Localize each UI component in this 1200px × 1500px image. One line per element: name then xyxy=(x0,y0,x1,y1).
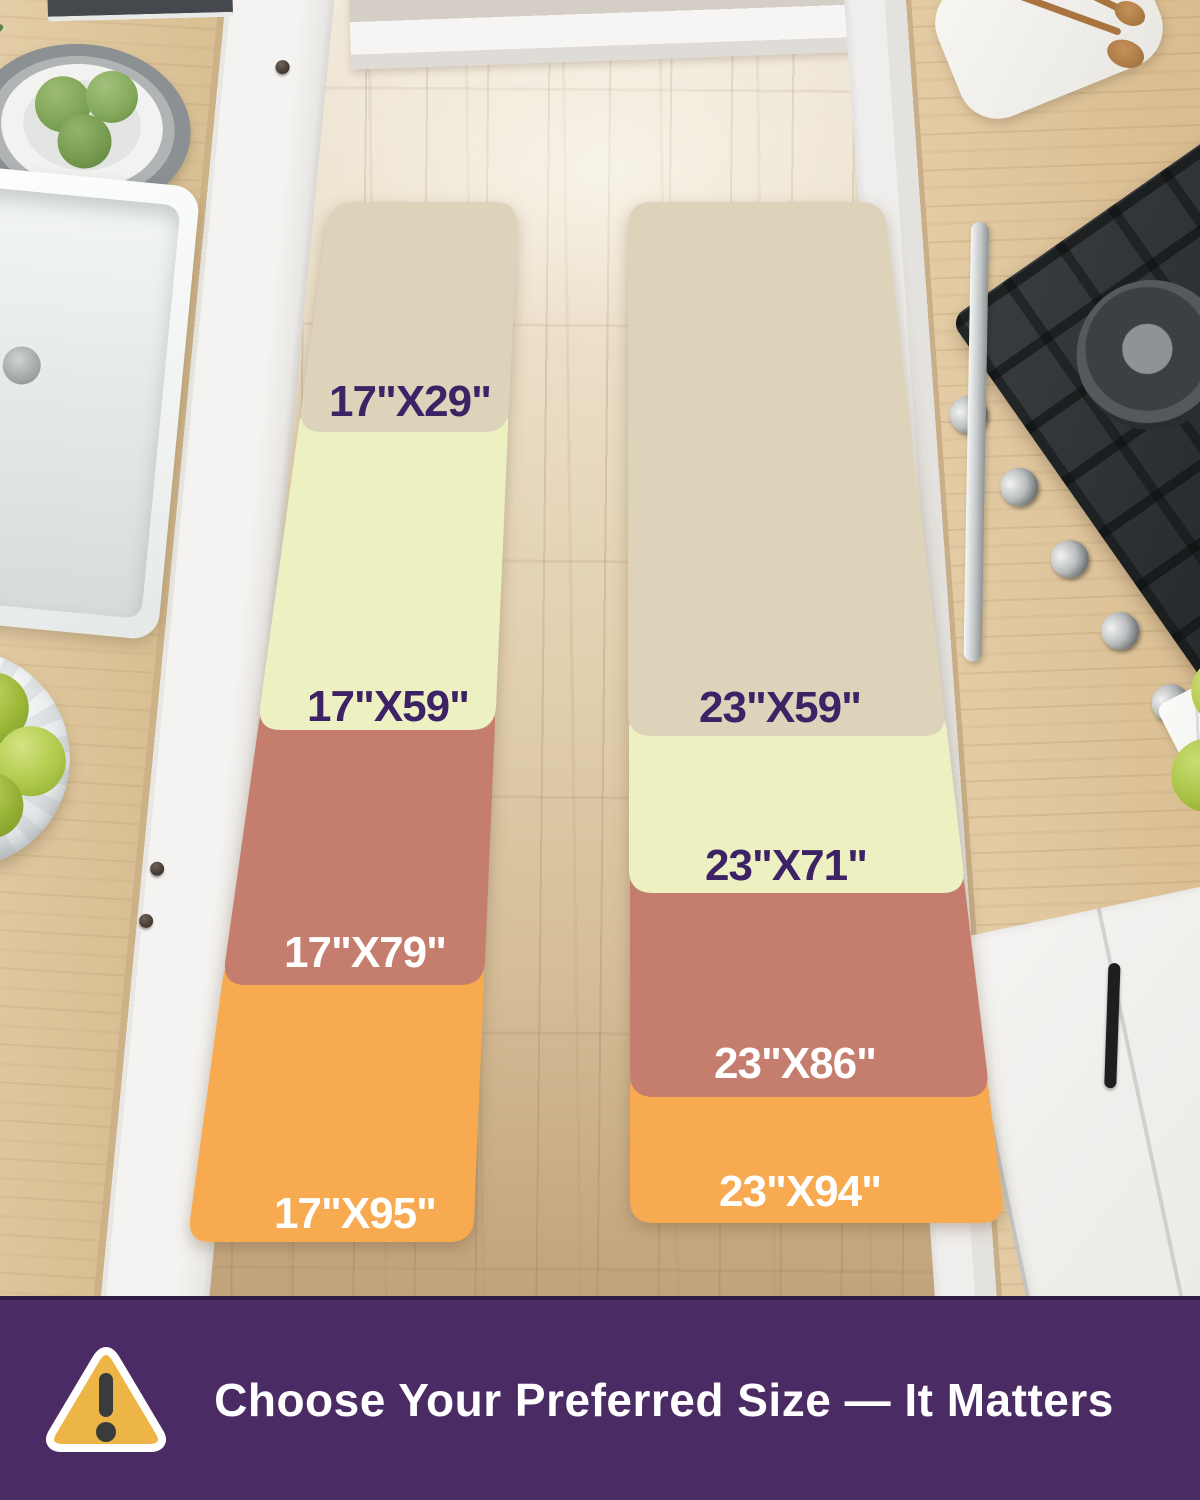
right-mat-label-23x71: 23"X71" xyxy=(705,841,867,890)
left-mat-17x59 xyxy=(260,402,508,730)
product-size-guide-image: 17"X29" 17"X59" 17"X79" 17"X95" 23"X59" … xyxy=(0,0,1200,1500)
banner-caption: Choose Your Preferred Size — It Matters xyxy=(172,1373,1156,1427)
left-runner: 17"X29" 17"X59" 17"X79" 17"X95" xyxy=(190,202,517,1242)
right-mat-label-23x86: 23"X86" xyxy=(714,1039,876,1088)
size-runners-overlay: 17"X29" 17"X59" 17"X79" 17"X95" 23"X59" … xyxy=(0,0,1200,1500)
right-mat-label-23x94: 23"X94" xyxy=(719,1167,881,1216)
right-runner: 23"X59" 23"X71" 23"X86" 23"X94" xyxy=(628,202,1002,1223)
left-mat-label-17x29: 17"X29" xyxy=(329,377,491,426)
exclamation-mark xyxy=(96,1373,116,1442)
left-mat-label-17x79: 17"X79" xyxy=(284,928,446,977)
left-mat-label-17x59: 17"X59" xyxy=(307,682,469,731)
left-mat-label-17x95: 17"X95" xyxy=(274,1189,436,1238)
right-mat-23x59 xyxy=(628,202,944,736)
warning-triangle-icon xyxy=(40,1340,172,1460)
right-mat-label-23x59: 23"X59" xyxy=(699,683,861,732)
bottom-banner: Choose Your Preferred Size — It Matters xyxy=(0,1296,1200,1500)
